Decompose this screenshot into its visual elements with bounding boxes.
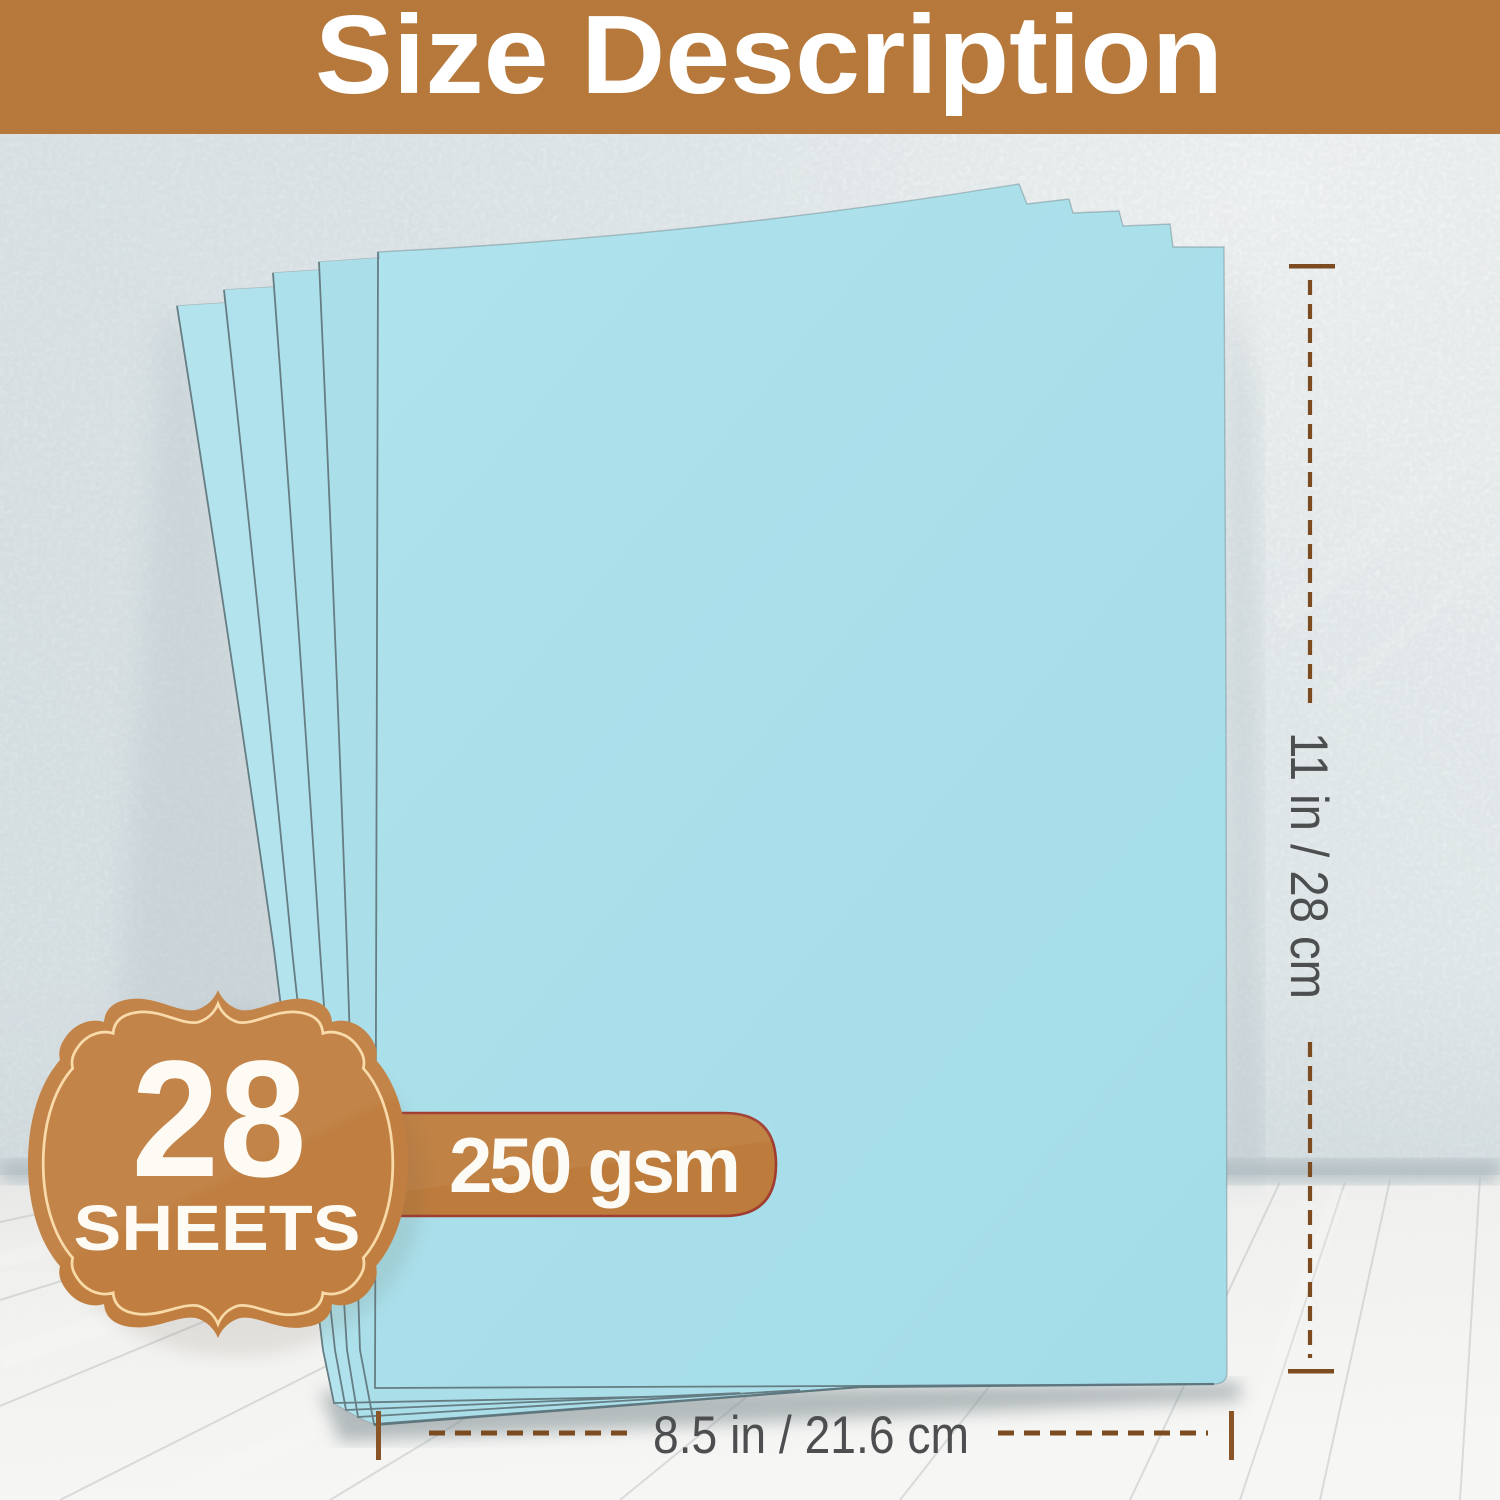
svg-text:SHEETS: SHEETS	[74, 1192, 361, 1264]
svg-text:Size Description: Size Description	[315, 0, 1223, 117]
svg-text:250 gsm: 250 gsm	[449, 1121, 741, 1209]
svg-text:8.5 in / 21.6 cm: 8.5 in / 21.6 cm	[653, 1406, 969, 1465]
svg-text:28: 28	[132, 1027, 307, 1212]
svg-text:11 in / 28 cm: 11 in / 28 cm	[1279, 732, 1338, 999]
